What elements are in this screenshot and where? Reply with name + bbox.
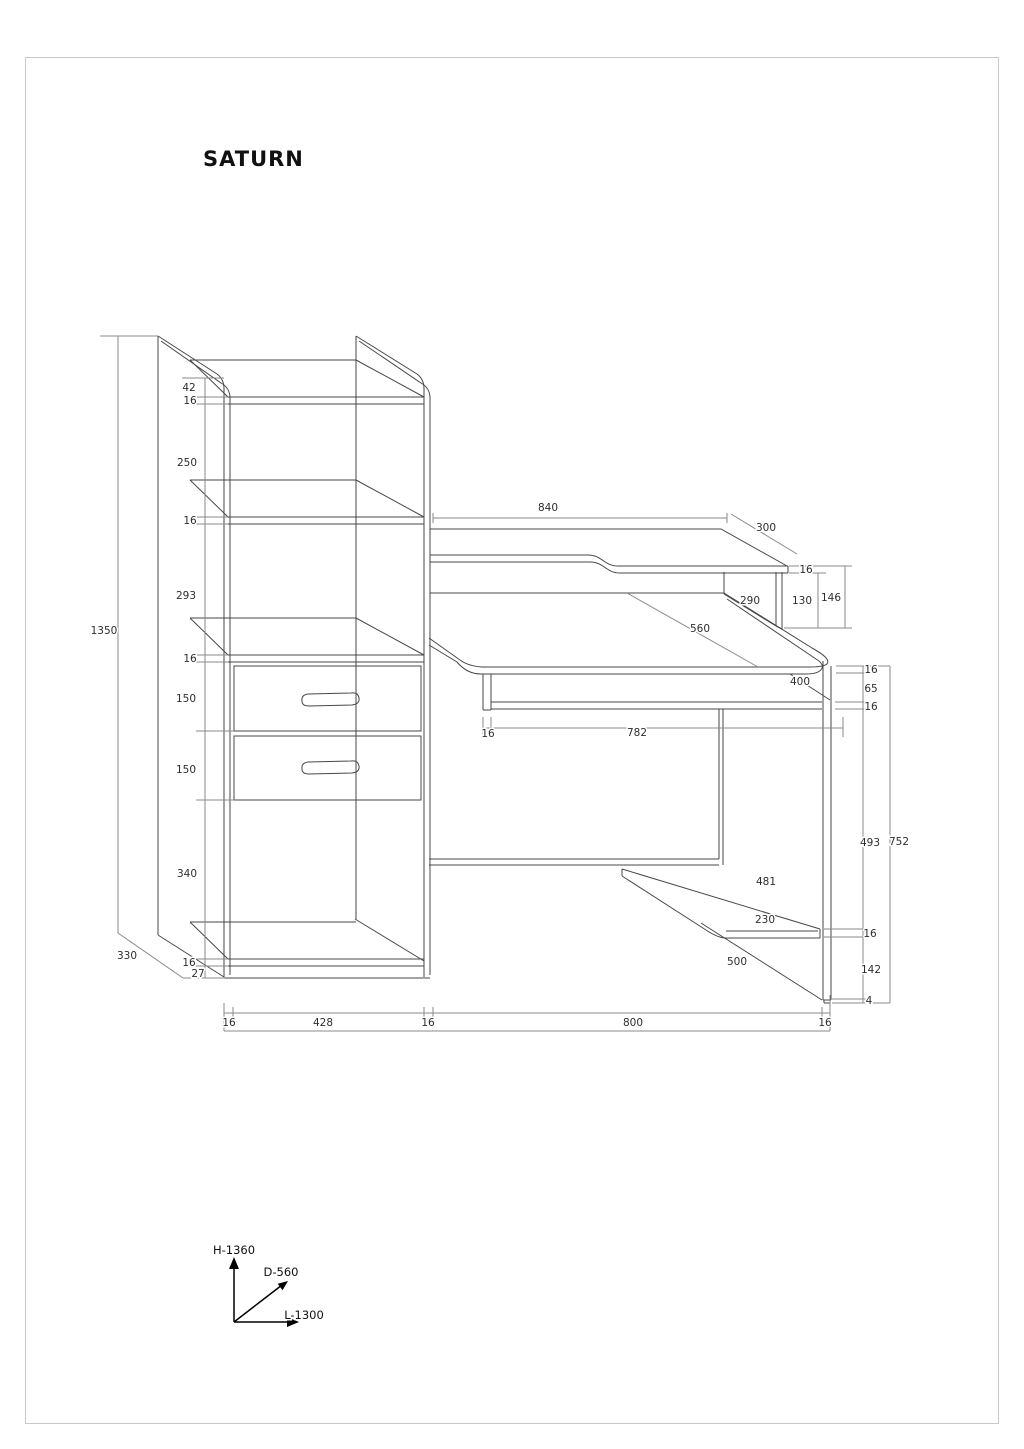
cabinet-right-panel-back-bottom xyxy=(355,336,424,961)
dim-shelf-gap-middle: 293 xyxy=(176,590,196,602)
dim-top-shelf-thickness: 16 xyxy=(183,395,197,407)
dim-desk-length: 800 xyxy=(623,1017,643,1029)
dim-base-mid: 16 xyxy=(421,1017,435,1029)
cpu-shelf xyxy=(622,869,820,938)
dim-shelf-gap-upper: 250 xyxy=(177,457,197,469)
dim-riser-total-height: 146 xyxy=(821,592,841,604)
dim-shelf-thickness-2: 16 xyxy=(183,515,197,527)
cabinet-shelves xyxy=(190,360,430,978)
dim-cabinet-depth: 330 xyxy=(117,950,137,962)
dim-tray-length: 782 xyxy=(627,727,647,739)
dim-tray-side-thickness: 16 xyxy=(481,728,495,740)
dim-desktop-thickness: 16 xyxy=(864,664,878,676)
cabinet-drawers xyxy=(234,666,421,919)
dim-top-shelf-depth: 300 xyxy=(756,522,776,534)
height-axis-arrowhead-icon xyxy=(229,1257,239,1269)
dim-top-shelf-board-thickness: 16 xyxy=(799,564,813,576)
dim-drawer-height-1: 150 xyxy=(176,693,196,705)
drawer-handle-bottom xyxy=(302,761,359,774)
dim-desktop-depth: 560 xyxy=(690,623,710,635)
dim-desk-height: 752 xyxy=(889,836,909,848)
right-dimension-columns xyxy=(824,666,890,1003)
page-border xyxy=(26,58,999,1424)
page-title: SATURN xyxy=(203,147,304,171)
dim-cpu-shelf-floor-gap: 142 xyxy=(861,964,881,976)
axis-length-label: L-1300 xyxy=(284,1308,324,1322)
dim-cpu-shelf-depth: 230 xyxy=(755,914,775,926)
dim-cabinet-height: 1350 xyxy=(91,625,118,637)
dimension-lines xyxy=(100,336,890,1031)
shelf-dimensions xyxy=(433,513,852,667)
cabinet-right-panel-outer-edge xyxy=(359,341,430,975)
dimension-labels: 1350 330 42 16 250 16 293 16 150 150 340… xyxy=(91,382,909,1029)
dim-plinth-height: 27 xyxy=(191,968,204,980)
dim-tray-thickness: 16 xyxy=(864,701,878,713)
keyboard-tray xyxy=(483,674,830,710)
dim-leg-clearance-height: 493 xyxy=(860,837,880,849)
dim-cabinet-inner-width: 428 xyxy=(313,1017,333,1029)
dim-drawer-height-2: 150 xyxy=(176,764,196,776)
axis-depth-label: D-560 xyxy=(264,1265,299,1279)
dim-shelf-thickness-3: 16 xyxy=(183,653,197,665)
cabinet-right-panel-inner-edge xyxy=(356,336,424,977)
dim-top-shelf-length: 840 xyxy=(538,502,558,514)
technical-drawing-canvas: SATURN 1350 330 42 16 250 xyxy=(0,0,1024,1449)
dim-glide-height: 4 xyxy=(866,995,873,1007)
right-leg xyxy=(701,661,831,1003)
cabinet-outline xyxy=(158,336,430,978)
dim-top-offset: 42 xyxy=(182,382,195,394)
desk-outline xyxy=(429,529,831,1003)
monitor-shelf xyxy=(430,529,788,573)
dim-tray-clearance: 65 xyxy=(864,683,877,695)
desktop xyxy=(429,593,828,674)
back-panel-rail xyxy=(429,709,723,865)
drawing-page: SATURN 1350 330 42 16 250 xyxy=(0,0,1024,1449)
dim-base-right: 16 xyxy=(818,1017,832,1029)
dim-tray-depth: 400 xyxy=(790,676,810,688)
dim-riser-depth: 290 xyxy=(740,595,760,607)
depth-axis-arrowhead-icon xyxy=(278,1281,288,1290)
dim-open-section-height: 340 xyxy=(177,868,197,880)
axis-legend: H-1360 D-560 L-1300 xyxy=(213,1243,324,1327)
axis-height-label: H-1360 xyxy=(213,1243,255,1257)
drawer-handle-top xyxy=(302,693,359,706)
dim-riser-height: 130 xyxy=(792,595,812,607)
dim-cpu-shelf-length: 481 xyxy=(756,876,776,888)
tray-dimensions xyxy=(483,717,843,737)
dim-cpu-shelf-thickness: 16 xyxy=(863,928,877,940)
dim-leg-depth: 500 xyxy=(727,956,747,968)
dim-base-left: 16 xyxy=(222,1017,236,1029)
